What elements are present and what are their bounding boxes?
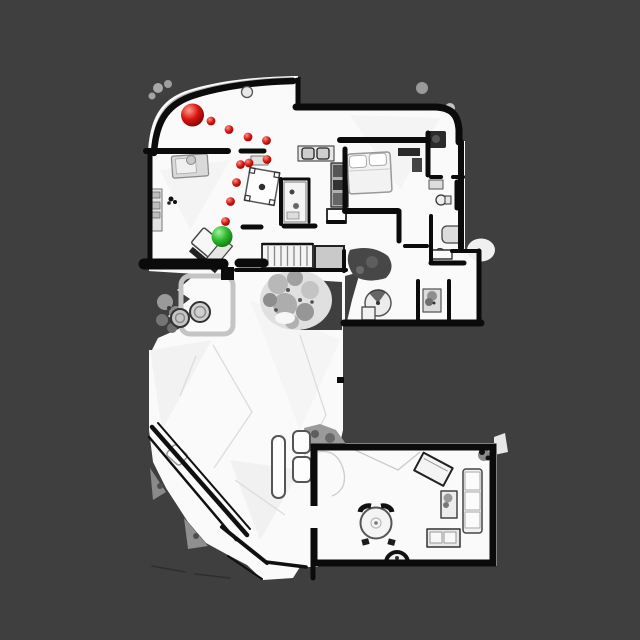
bench	[293, 457, 311, 482]
trail-dot	[263, 155, 272, 164]
wall-knob	[242, 87, 253, 98]
door-gap	[309, 506, 318, 528]
balcony-debris	[164, 80, 172, 88]
cushion-bench	[427, 529, 460, 547]
bench	[293, 431, 310, 453]
trail-dot	[221, 217, 230, 226]
sofa-knob	[187, 156, 196, 165]
trail-dot	[262, 136, 271, 145]
kitchen-counter	[298, 146, 334, 161]
right-sofa	[463, 469, 482, 533]
top-wall-box	[430, 250, 452, 259]
garden-plant-cluster	[260, 270, 332, 330]
pillow	[349, 155, 367, 168]
trail-dot	[226, 197, 235, 206]
sink	[317, 148, 329, 159]
balcony-debris	[153, 83, 163, 93]
wicker-chair	[171, 309, 189, 327]
trail-dot	[244, 133, 253, 142]
floorplan-stage	[0, 0, 640, 640]
side-table	[244, 168, 279, 206]
trail-dot	[232, 178, 241, 187]
pillow	[369, 153, 387, 166]
toilet	[436, 195, 451, 205]
trail-dot	[245, 159, 254, 168]
start-marker	[181, 104, 204, 127]
small-box	[362, 307, 375, 320]
wicker-chair	[190, 302, 210, 322]
exterior-debris	[416, 82, 428, 94]
pantry-items	[284, 182, 306, 222]
tv-cabinet	[441, 491, 457, 518]
trail-dot	[236, 160, 245, 169]
stair-landing	[315, 246, 344, 269]
pedestal-plant	[423, 289, 441, 312]
long-bench	[272, 436, 285, 498]
sink	[302, 148, 314, 159]
bath-sink	[429, 180, 443, 189]
trail-dot	[207, 117, 216, 126]
balcony-debris	[149, 93, 156, 100]
trail-dot	[225, 125, 234, 134]
floorplan-viewport[interactable]	[0, 0, 640, 640]
goal-marker	[212, 226, 233, 247]
staircase	[262, 244, 344, 269]
bed	[347, 152, 392, 194]
